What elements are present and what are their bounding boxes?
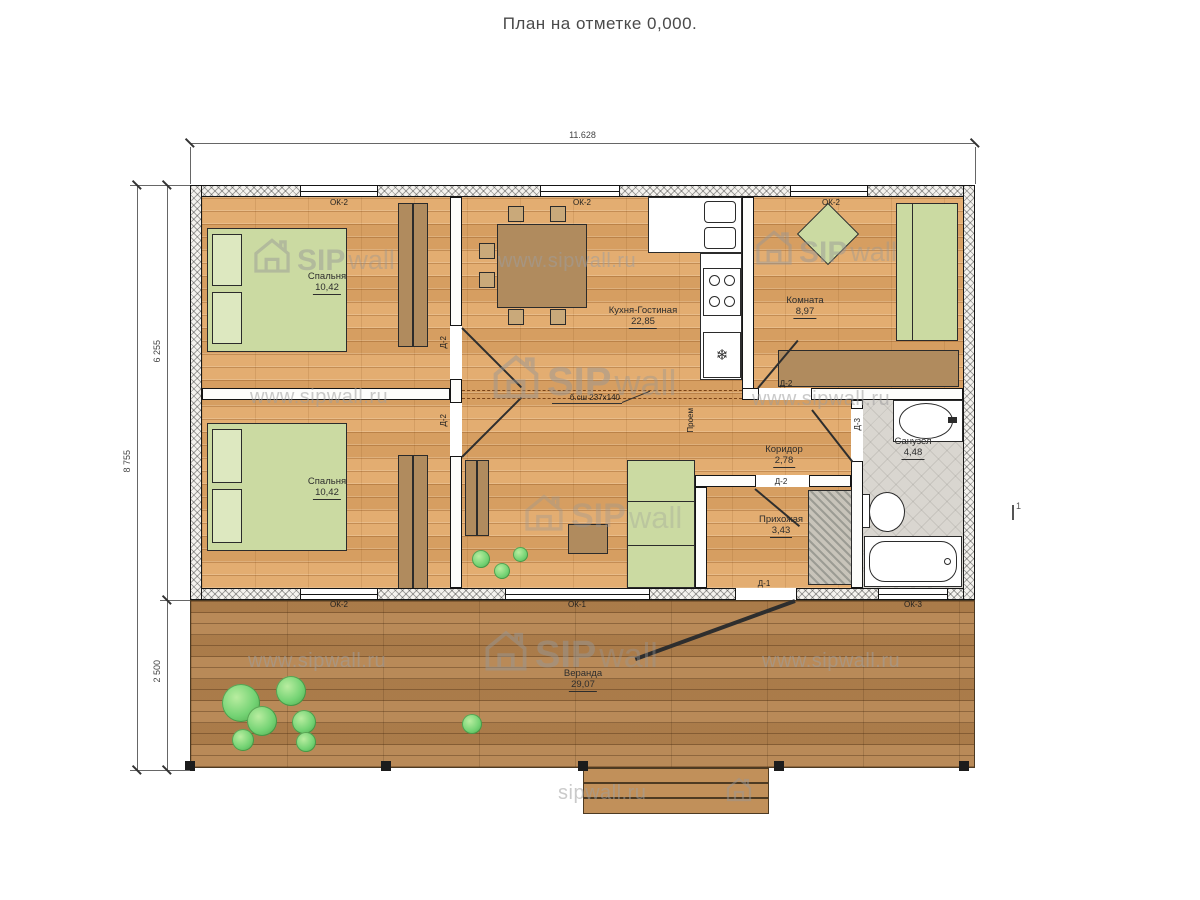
extension-line bbox=[190, 147, 191, 184]
room-area: 10,42 bbox=[313, 487, 341, 499]
dining-table bbox=[497, 224, 587, 308]
shelf-unit bbox=[465, 460, 489, 536]
dimension-value-left-deck: 2 500 bbox=[152, 660, 162, 683]
side-table bbox=[568, 524, 608, 554]
kitchen-sink bbox=[704, 227, 736, 249]
pillow bbox=[212, 429, 242, 483]
door-opening-d3 bbox=[851, 408, 863, 462]
room-area: 8,97 bbox=[794, 306, 817, 318]
drawing-title: План на отметке 0,000. bbox=[0, 14, 1200, 34]
interior-wall bbox=[695, 487, 707, 588]
room-label-corridor: Коридор 2,78 bbox=[765, 444, 803, 468]
stove-burner bbox=[709, 296, 720, 307]
chair bbox=[550, 206, 566, 222]
room-area: 10,42 bbox=[313, 282, 341, 294]
interior-wall bbox=[450, 197, 462, 588]
dimension-line-left-total bbox=[137, 185, 138, 770]
wardrobe bbox=[398, 455, 428, 591]
section-marker: 1 bbox=[1012, 505, 1014, 520]
beam-note: б.сш 237х140 bbox=[548, 393, 620, 402]
room-label-bedroom2: Спальня 10,42 bbox=[308, 476, 346, 500]
bush bbox=[296, 732, 316, 752]
door-opening-d2 bbox=[450, 402, 462, 457]
daybed bbox=[896, 203, 958, 341]
window-label: ОК-2 bbox=[330, 600, 348, 609]
sofa bbox=[627, 460, 695, 588]
window-ok2 bbox=[300, 588, 378, 600]
bathtub-drain bbox=[944, 558, 951, 565]
deck-post bbox=[578, 761, 588, 771]
veranda-step bbox=[583, 783, 769, 798]
window-ok1 bbox=[505, 588, 650, 600]
bush bbox=[462, 714, 482, 734]
interior-wall bbox=[202, 388, 450, 400]
hall-wardrobe bbox=[808, 490, 852, 585]
chair bbox=[550, 309, 566, 325]
room-label-veranda: Веранда 29,07 bbox=[564, 668, 602, 692]
room-label-kitchen-living: Кухня-Гостиная 22,85 bbox=[609, 305, 677, 329]
bush bbox=[276, 676, 306, 706]
dimension-value-top: 11.628 bbox=[540, 130, 625, 140]
deck-post bbox=[381, 761, 391, 771]
door-label: Д-1 bbox=[758, 579, 771, 588]
room-label-bathroom: Санузел 4,48 bbox=[894, 436, 931, 460]
bush bbox=[232, 729, 254, 751]
passage-label: Проем bbox=[686, 408, 695, 433]
floor-plan-canvas: План на отметке 0,000. ❄ bbox=[0, 0, 1200, 900]
exterior-wall-right bbox=[963, 185, 975, 600]
kitchen-sink bbox=[704, 201, 736, 223]
beam-leader-line bbox=[552, 403, 622, 404]
dimension-line-top bbox=[190, 143, 975, 144]
chair bbox=[479, 243, 495, 259]
pillow bbox=[212, 489, 242, 543]
bush bbox=[292, 710, 316, 734]
room-name: Санузел bbox=[894, 436, 931, 447]
plant bbox=[472, 550, 490, 568]
dimension-value-left-total: 8 755 bbox=[122, 450, 132, 473]
window-label: ОК-2 bbox=[330, 198, 348, 207]
fridge: ❄ bbox=[703, 332, 741, 378]
room-area: 2,78 bbox=[773, 455, 796, 467]
beam-dashed-line bbox=[462, 390, 742, 391]
room-label-hallway: Прихожая 3,43 bbox=[759, 514, 803, 538]
stove bbox=[703, 268, 741, 316]
room-area: 29,07 bbox=[569, 679, 597, 691]
chair bbox=[479, 272, 495, 288]
section-marker-number: 1 bbox=[1016, 501, 1021, 511]
deck-post bbox=[959, 761, 969, 771]
faucet bbox=[948, 417, 957, 423]
room-name: Коридор bbox=[765, 444, 803, 455]
veranda-step bbox=[583, 798, 769, 814]
extension-line bbox=[160, 600, 190, 601]
room-name: Кухня-Гостиная bbox=[609, 305, 677, 316]
room-name: Прихожая bbox=[759, 514, 803, 525]
door-label: Д-2 bbox=[775, 477, 788, 486]
stove-burner bbox=[724, 275, 735, 286]
deck-post bbox=[774, 761, 784, 771]
plant bbox=[494, 563, 510, 579]
washbasin bbox=[899, 403, 953, 439]
door-opening-d2 bbox=[450, 325, 462, 380]
room-area: 4,48 bbox=[902, 447, 925, 459]
plant bbox=[513, 547, 528, 562]
wardrobe bbox=[398, 203, 428, 347]
door-opening-d2 bbox=[758, 388, 812, 400]
stove-burner bbox=[709, 275, 720, 286]
door-opening-d1 bbox=[735, 588, 797, 600]
chair bbox=[508, 206, 524, 222]
window-label: ОК-2 bbox=[573, 198, 591, 207]
room-name: Веранда bbox=[564, 668, 602, 679]
door-label: Д-3 bbox=[853, 418, 862, 431]
pillow bbox=[212, 234, 242, 286]
room-label-bedroom1: Спальня 10,42 bbox=[308, 271, 346, 295]
snowflake-icon: ❄ bbox=[716, 346, 729, 364]
room-name: Спальня bbox=[308, 476, 346, 487]
room-label-room: Комната 8,97 bbox=[786, 295, 823, 319]
chair bbox=[508, 309, 524, 325]
veranda-step bbox=[583, 768, 769, 783]
window-ok2 bbox=[790, 185, 868, 197]
sofa-cushion-line bbox=[628, 501, 694, 502]
bush bbox=[247, 706, 277, 736]
door-label: Д-2 bbox=[780, 379, 793, 388]
sofa-cushion-line bbox=[628, 545, 694, 546]
room-name: Комната bbox=[786, 295, 823, 306]
window-label: ОК-2 bbox=[822, 198, 840, 207]
desk bbox=[778, 350, 959, 387]
door-label: Д-2 bbox=[439, 414, 448, 427]
stove-burner bbox=[724, 296, 735, 307]
extension-line bbox=[975, 147, 976, 184]
room-area: 22,85 bbox=[629, 316, 657, 328]
dimension-value-left-house: 6 255 bbox=[152, 340, 162, 363]
dimension-line-left-inner bbox=[167, 185, 168, 770]
section-marker-line bbox=[1012, 505, 1014, 520]
interior-wall bbox=[742, 197, 754, 390]
toilet-bowl bbox=[869, 492, 905, 532]
window-label: ОК-3 bbox=[904, 600, 922, 609]
window-ok2 bbox=[300, 185, 378, 197]
window-ok3 bbox=[878, 588, 948, 600]
room-area: 3,43 bbox=[770, 525, 793, 537]
window-label: ОК-1 bbox=[568, 600, 586, 609]
pillow bbox=[212, 292, 242, 344]
exterior-wall-left bbox=[190, 185, 202, 600]
door-label: Д-2 bbox=[439, 336, 448, 349]
room-name: Спальня bbox=[308, 271, 346, 282]
window-ok2 bbox=[540, 185, 620, 197]
